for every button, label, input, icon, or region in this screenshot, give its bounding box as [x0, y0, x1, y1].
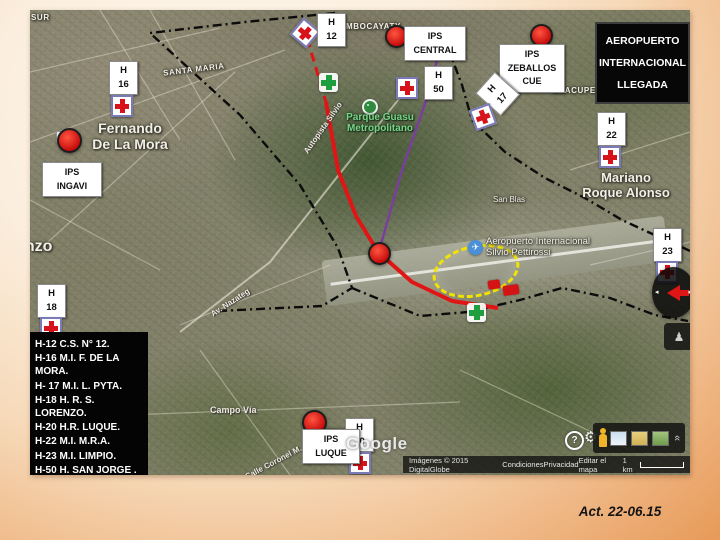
- legend-item: H-50 H. SAN JORGE .: [35, 464, 145, 475]
- layer-thumbnail-map[interactable]: [610, 431, 627, 446]
- slide: SUR SANTA MARIA MBOCAYATY CAACUPEMI Fern…: [0, 0, 720, 540]
- map-label-aeropuerto: Aeropuerto Internacional Silvio Pettiros…: [486, 236, 606, 258]
- marker-h12: H 12: [317, 13, 346, 47]
- pegman-dock-button[interactable]: [664, 323, 690, 350]
- map-label-san-lorenzo-partial: enzo: [30, 238, 52, 256]
- legend-item: H-22 M.I. M.R.A.: [35, 435, 145, 448]
- scale-bar: 1 km: [623, 456, 684, 474]
- nav-arrow-button[interactable]: ◂ ▸: [652, 267, 690, 318]
- marker-h23: H 23: [653, 228, 682, 262]
- red-dot-marker-route: [368, 242, 391, 265]
- hospital-cross-icon: [111, 95, 133, 117]
- map-canvas[interactable]: SUR SANTA MARIA MBOCAYATY CAACUPEMI Fern…: [30, 10, 690, 475]
- terminal-building-red: [487, 279, 500, 290]
- map-label-san-blas: San Blas: [493, 195, 525, 204]
- legend-item: H-23 M.I. LIMPIO.: [35, 450, 145, 463]
- scale-line: [640, 462, 684, 468]
- imagery-credit: Imágenes © 2015 DigitalGlobe: [409, 456, 502, 474]
- hospital-cross-icon: [599, 146, 621, 168]
- map-controls-panel: [593, 423, 685, 453]
- airplane-icon: [468, 240, 483, 255]
- marker-h18: H 18: [37, 284, 66, 318]
- pegman-icon[interactable]: [598, 428, 606, 448]
- scale-label: 1 km: [623, 456, 638, 474]
- slide-date-note: Act. 22-06.15: [540, 504, 700, 519]
- edit-map-link[interactable]: Editar el mapa: [579, 456, 623, 474]
- legend-item: H-18 H. R. S. LORENZO.: [35, 394, 145, 420]
- legend-panel: H-12 C.S. N° 12. H-16 M.I. F. DE LA MORA…: [30, 332, 148, 475]
- legend-item: H- 17 M.I. L. PYTA.: [35, 380, 145, 393]
- collapse-chevron-icon[interactable]: [671, 435, 683, 441]
- map-label-parque-guasu: Parque Guasu Metropolitano: [328, 112, 432, 134]
- privacy-link[interactable]: Privacidad: [544, 460, 579, 469]
- hospital-cross-icon: [396, 77, 418, 99]
- marker-h50: H 50: [424, 66, 453, 100]
- left-tick-icon: ◂: [655, 289, 659, 296]
- map-label-fernando-de-la-mora: Fernando De La Mora: [65, 120, 195, 152]
- marker-h22: H 22: [597, 112, 626, 146]
- legend-item: H-16 M.I. F. DE LA MORA.: [35, 352, 145, 378]
- green-cross-icon: [467, 303, 486, 322]
- legend-item: H-12 C.S. N° 12.: [35, 338, 145, 351]
- map-label-campo-via: Campo Vía: [210, 405, 257, 415]
- terms-link[interactable]: Condiciones: [502, 460, 543, 469]
- red-dot-marker-ingavi: [57, 128, 82, 153]
- right-tick-icon: ▸: [688, 289, 690, 296]
- marker-h16: H 16: [109, 61, 138, 95]
- red-left-arrow-icon: [667, 285, 680, 301]
- legend-item: H-20 H.R. LUQUE.: [35, 421, 145, 434]
- google-watermark[interactable]: Google: [346, 434, 408, 454]
- layer-thumbnail-satellite[interactable]: [652, 431, 669, 446]
- layer-thumbnail-terrain[interactable]: [631, 431, 648, 446]
- map-label-mariano-roque-alonso: Mariano Roque Alonso: [570, 170, 682, 200]
- help-icon[interactable]: ?: [565, 431, 584, 450]
- aeropuerto-title-box: AEROPUERTO INTERNACIONAL LLEGADA: [595, 22, 690, 104]
- marker-ips-ingavi: IPS INGAVI: [42, 162, 102, 197]
- marker-ips-central: IPS CENTRAL: [404, 26, 466, 61]
- attribution-bar: Imágenes © 2015 DigitalGlobe Condiciones…: [403, 456, 690, 473]
- green-cross-icon: [319, 73, 338, 92]
- map-label-sur: SUR: [31, 13, 50, 22]
